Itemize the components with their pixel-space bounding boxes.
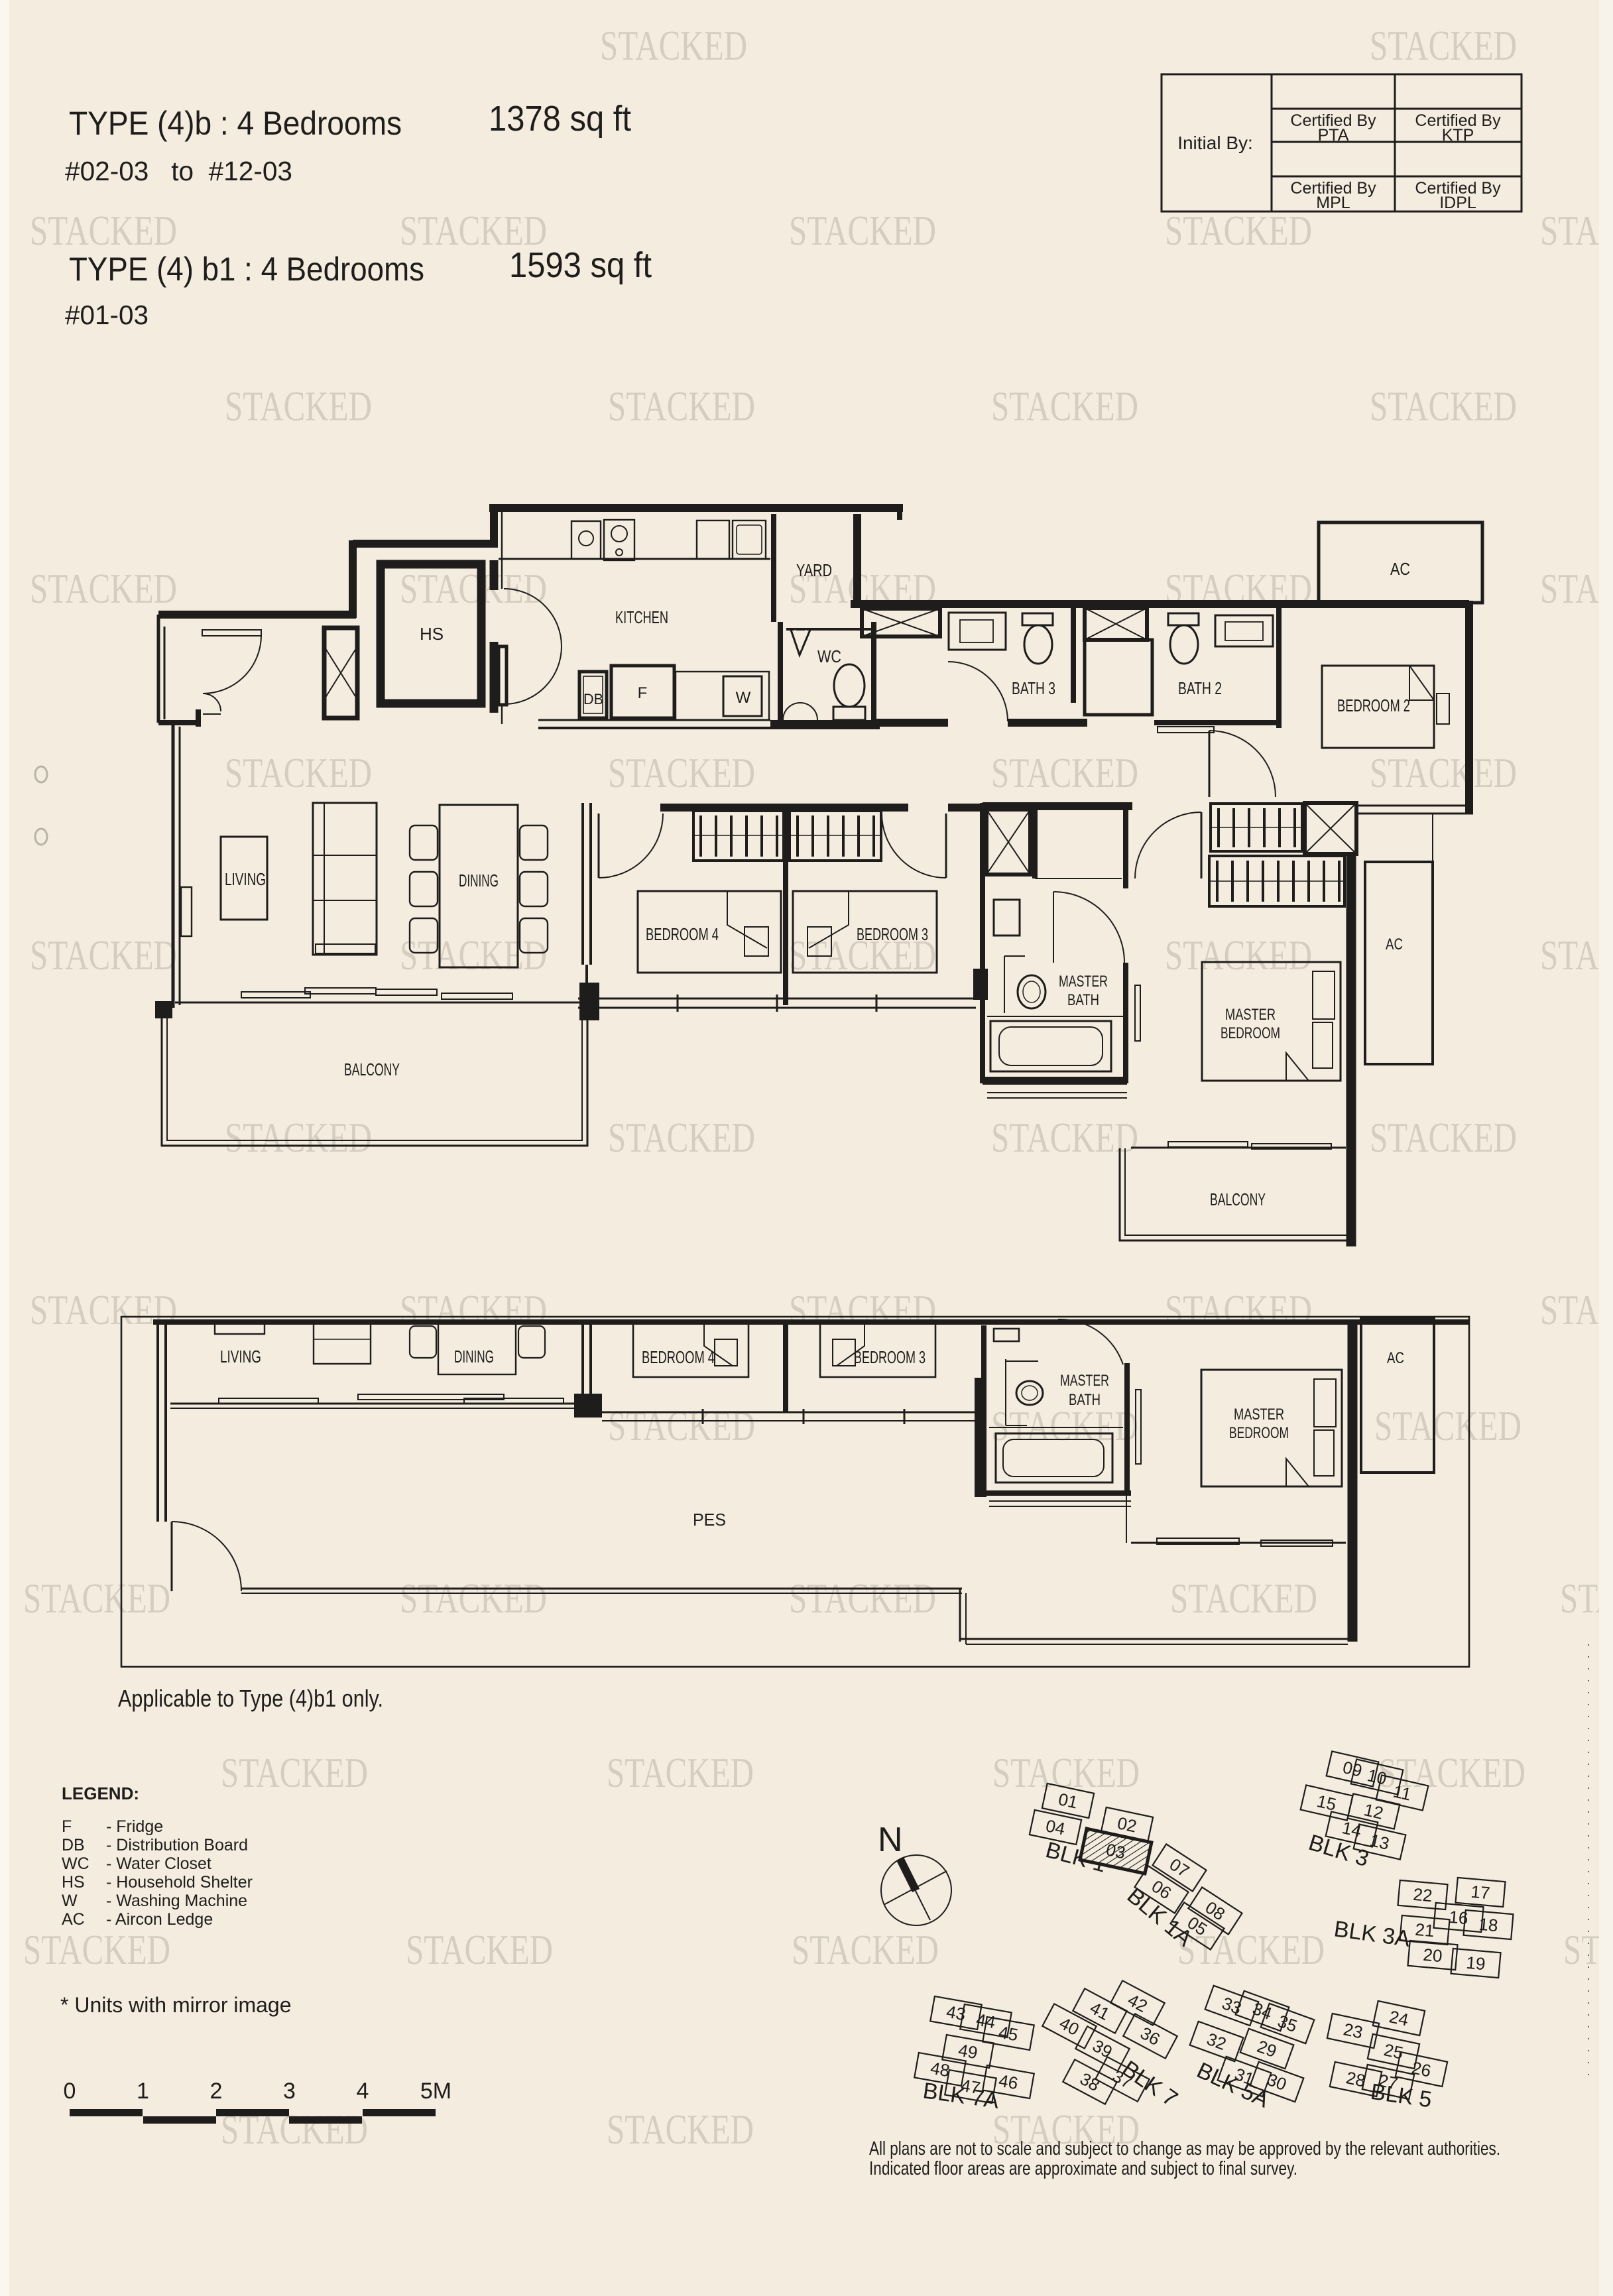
svg-text:TYPE (4) b1 : 4 Bedrooms: TYPE (4) b1 : 4 Bedrooms: [69, 251, 424, 288]
svg-text:STACKED: STACKED: [1370, 749, 1517, 796]
svg-text:STACKED: STACKED: [608, 749, 755, 796]
svg-text:STACKED: STACKED: [992, 1749, 1140, 1796]
svg-text:LIVING: LIVING: [225, 869, 266, 889]
svg-text:HS: HS: [62, 1873, 85, 1892]
svg-text:WC: WC: [62, 1854, 90, 1873]
svg-text:2: 2: [210, 2079, 223, 2104]
svg-text:AC: AC: [62, 1910, 85, 1929]
svg-text:STACKED: STACKED: [607, 1749, 754, 1796]
svg-text:STACKED: STACKED: [608, 1114, 755, 1161]
svg-text:- Fridge: - Fridge: [106, 1817, 163, 1836]
svg-text:MASTER: MASTER: [1059, 973, 1108, 991]
svg-text:02: 02: [1116, 1813, 1139, 1836]
svg-text:BEDROOM 4: BEDROOM 4: [646, 924, 719, 944]
svg-text:20: 20: [1422, 1945, 1443, 1966]
svg-text:STACKED: STACKED: [400, 565, 547, 612]
svg-text:LIVING: LIVING: [220, 1347, 261, 1366]
svg-text:DB: DB: [583, 691, 603, 707]
svg-text:STACKED: STACKED: [607, 2106, 754, 2153]
svg-text:BEDROOM 4: BEDROOM 4: [642, 1347, 715, 1367]
svg-text:STACKED: STACKED: [1374, 1402, 1522, 1449]
svg-text:- Household Shelter: - Household Shelter: [106, 1873, 253, 1892]
svg-text:F: F: [62, 1817, 72, 1836]
svg-text:KTP: KTP: [1442, 126, 1474, 145]
svg-text:21: 21: [1414, 1919, 1435, 1941]
svg-text:STACKED: STACKED: [608, 1402, 755, 1449]
svg-text:STACKED: STACKED: [30, 1286, 177, 1333]
svg-text:#02-03 to #12-03: #02-03 to #12-03: [65, 156, 292, 186]
svg-text:45: 45: [997, 2022, 1020, 2045]
svg-text:MASTER: MASTER: [1060, 1372, 1109, 1390]
svg-text:19: 19: [1465, 1953, 1486, 1974]
svg-text:PTA: PTA: [1318, 126, 1349, 145]
svg-text:STACKED: STACKED: [789, 1286, 936, 1333]
svg-text:1593 sq ft: 1593 sq ft: [509, 245, 652, 285]
svg-text:- Washing Machine: - Washing Machine: [106, 1892, 247, 1910]
svg-text:24: 24: [1388, 2006, 1411, 2029]
svg-text:STACKED: STACKED: [1370, 383, 1517, 430]
svg-text:STACKED: STACKED: [991, 1114, 1138, 1161]
svg-text:WC: WC: [817, 646, 841, 666]
svg-text:23: 23: [1342, 2019, 1365, 2042]
svg-text:HS: HS: [420, 624, 444, 644]
svg-text:Applicable to Type (4)b1 only.: Applicable to Type (4)b1 only.: [118, 1685, 383, 1712]
svg-text:STACKED: STACKED: [792, 1926, 939, 1973]
svg-text:STACKED: STACKED: [1165, 207, 1312, 254]
svg-text:STACKED: STACKED: [991, 383, 1138, 430]
svg-text:STACKED: STACKED: [1370, 1114, 1517, 1161]
svg-text:KITCHEN: KITCHEN: [615, 607, 668, 627]
svg-text:- Water Closet: - Water Closet: [106, 1854, 211, 1873]
svg-text:STACKED: STACKED: [30, 565, 177, 612]
svg-text:4: 4: [357, 2079, 369, 2104]
svg-text:BATH: BATH: [1067, 991, 1099, 1009]
svg-text:25: 25: [1382, 2039, 1405, 2063]
svg-text:* Units with mirror image: * Units with mirror image: [60, 1993, 292, 2017]
svg-text:03: 03: [1105, 1839, 1128, 1862]
svg-text:STACKED: STACKED: [23, 1575, 170, 1622]
svg-text:STACKED: STACKED: [400, 1575, 547, 1622]
svg-text:BALCONY: BALCONY: [1210, 1189, 1266, 1209]
svg-text:AC: AC: [1387, 1349, 1404, 1367]
svg-text:STACKED: STACKED: [1170, 1575, 1317, 1622]
svg-text:PES: PES: [693, 1510, 726, 1530]
svg-text:MASTER: MASTER: [1234, 1406, 1284, 1423]
svg-text:AC: AC: [1386, 936, 1403, 953]
svg-text:YARD: YARD: [796, 560, 832, 580]
svg-text:01: 01: [1057, 1789, 1080, 1812]
svg-text:STACKED: STACKED: [225, 383, 372, 430]
svg-text:STACKED: STACKED: [608, 383, 755, 430]
svg-text:W: W: [62, 1892, 78, 1910]
svg-text:BEDROOM 2: BEDROOM 2: [1337, 695, 1410, 715]
svg-text:46: 46: [997, 2071, 1020, 2094]
svg-text:STACKED: STACKED: [1370, 22, 1517, 69]
svg-text:F: F: [638, 684, 648, 702]
svg-text:LEGEND:: LEGEND:: [62, 1783, 139, 1803]
svg-text:STACKED: STACKED: [225, 749, 372, 796]
svg-text:IDPL: IDPL: [1439, 194, 1476, 212]
svg-text:STACKED: STACKED: [600, 22, 747, 69]
svg-text:BATH 2: BATH 2: [1178, 678, 1222, 698]
svg-text:BALCONY: BALCONY: [344, 1059, 400, 1079]
svg-text:#01-03: #01-03: [65, 300, 149, 330]
svg-text:STACKED: STACKED: [30, 932, 177, 979]
svg-text:1: 1: [137, 2079, 149, 2104]
svg-text:All plans are not to scale and: All plans are not to scale and subject t…: [869, 2138, 1500, 2159]
svg-text:BEDROOM 3: BEDROOM 3: [857, 924, 928, 944]
svg-text:STACKED: STACKED: [225, 1114, 372, 1161]
svg-text:STACKED: STACKED: [23, 1926, 170, 1973]
svg-text:STACKED: STACKED: [991, 749, 1138, 796]
svg-text:5M: 5M: [420, 2079, 451, 2104]
svg-text:22: 22: [1412, 1884, 1433, 1905]
svg-text:Indicated floor areas are appr: Indicated floor areas are approximate an…: [869, 2158, 1297, 2179]
svg-text:DINING: DINING: [454, 1347, 494, 1366]
svg-text:- Distribution Board: - Distribution Board: [106, 1836, 248, 1854]
svg-text:BATH 3: BATH 3: [1012, 678, 1055, 698]
svg-text:N: N: [878, 1821, 903, 1859]
svg-text:BATH: BATH: [1069, 1391, 1101, 1409]
svg-text:BEDROOM: BEDROOM: [1221, 1024, 1280, 1042]
svg-text:1378 sq ft: 1378 sq ft: [489, 99, 631, 139]
svg-text:STACKED: STACKED: [1165, 932, 1312, 979]
svg-text:STACKED: STACKED: [221, 1749, 368, 1796]
svg-text:- Aircon Ledge: - Aircon Ledge: [106, 1910, 213, 1929]
svg-text:BEDROOM 3: BEDROOM 3: [854, 1347, 926, 1367]
svg-text:DINING: DINING: [459, 871, 499, 890]
svg-text:STACKED: STACKED: [789, 1575, 936, 1622]
svg-text:BEDROOM: BEDROOM: [1229, 1424, 1289, 1442]
svg-text:AC: AC: [1390, 559, 1410, 579]
svg-text:MPL: MPL: [1316, 194, 1350, 212]
svg-text:0: 0: [64, 2079, 76, 2104]
svg-text:W: W: [736, 689, 751, 707]
svg-text:MASTER: MASTER: [1225, 1006, 1276, 1024]
svg-text:STACKED: STACKED: [406, 1926, 553, 1973]
svg-text:3: 3: [283, 2079, 296, 2104]
svg-text:STACKED: STACKED: [789, 207, 936, 254]
svg-text:STACKED: STACKED: [1165, 1286, 1312, 1333]
svg-text:STACKED: STACKED: [30, 207, 177, 254]
svg-text:18: 18: [1478, 1914, 1498, 1935]
svg-text:STACKED: STACKED: [400, 932, 547, 979]
svg-text:17: 17: [1470, 1882, 1490, 1903]
svg-text:04: 04: [1044, 1815, 1067, 1839]
svg-text:DB: DB: [62, 1836, 85, 1854]
svg-text:TYPE (4)b : 4 Bedrooms: TYPE (4)b : 4 Bedrooms: [69, 105, 402, 142]
svg-text:Initial By:: Initial By:: [1177, 133, 1253, 153]
